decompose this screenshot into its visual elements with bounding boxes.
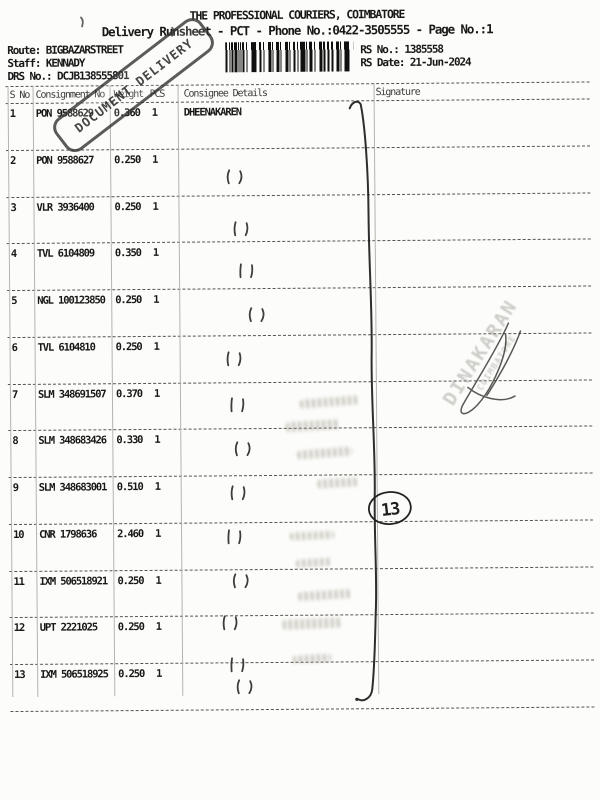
rs-no-label: RS No.: [360, 43, 399, 56]
cell-pcs: 1 [152, 154, 157, 166]
print-through-marks [0, 0, 597, 2]
staff-label: Staff: [7, 57, 40, 70]
cell-consignment_no: IXM 506518921 [39, 575, 107, 588]
rs-no-value: 1385558 [404, 43, 443, 56]
cell-consignment_no: SLM 348691507 [38, 388, 106, 401]
cell-weight: 0.250 [118, 621, 144, 633]
cell-consignment_no: CNR 1798636 [39, 528, 96, 540]
rs-barcode [225, 41, 353, 72]
cell-consignment_no: SLM 348683426 [38, 435, 106, 448]
cell-pcs: 1 [154, 341, 159, 353]
cell-pcs: 1 [156, 621, 161, 633]
cell-weight: 0.330 [116, 434, 142, 446]
cell-s_no: 10 [13, 529, 24, 541]
cell-consignment_no: IXM 506518925 [40, 668, 108, 681]
staff-line: Staff: KENNADY [7, 56, 84, 70]
cell-consignment_no: SLM 348683001 [39, 481, 107, 494]
cell-weight: 0.370 [116, 388, 142, 400]
cell-s_no: 1 [10, 108, 15, 120]
cell-consignee: DHEENAKAREN [184, 106, 241, 118]
drs-label: DRS No.: [7, 70, 51, 83]
route-label: Route: [7, 44, 40, 57]
cell-s_no: 5 [11, 295, 16, 307]
rs-date-line: RS Date: 21-Jun-2024 [360, 55, 470, 69]
cell-consignment_no: PON 9588627 [36, 154, 93, 166]
table-row: 13IXM 5065189250.2501 [10, 661, 594, 712]
cell-s_no: 9 [13, 482, 18, 494]
cell-consignment_no: UPT 2221025 [40, 622, 97, 634]
cell-s_no: 12 [14, 622, 25, 634]
cell-weight: 2.460 [117, 528, 143, 540]
cell-pcs: 1 [155, 481, 160, 493]
cell-weight: 0.250 [116, 341, 142, 353]
table-row: 2PON 95886270.2501 [6, 146, 590, 197]
table-row: 3VLR 39364000.2501 [6, 193, 590, 244]
rs-date-value: 21-Jun-2024 [410, 55, 471, 68]
rs-date-label: RS Date: [360, 56, 404, 69]
cell-weight: 0.250 [117, 575, 143, 587]
cell-pcs: 1 [155, 575, 160, 587]
cell-consignment_no: TVL 6104810 [38, 341, 95, 353]
cell-pcs: 1 [152, 200, 157, 212]
route-line: Route: BIGBAZARSTREET [7, 43, 123, 57]
table-row: 4TVL 61048090.3501 [7, 240, 591, 291]
table-row: 9SLM 3486830010.5101 [9, 474, 593, 525]
col-header-sno: S No [10, 90, 30, 101]
rs-no-line: RS No.: 1385558 [360, 43, 443, 57]
cell-pcs: 1 [154, 434, 159, 446]
cell-s_no: 2 [10, 155, 15, 167]
cell-pcs: 1 [156, 668, 161, 680]
cell-s_no: 8 [12, 435, 17, 447]
cell-pcs: 1 [154, 387, 159, 399]
cell-s_no: 11 [13, 576, 24, 588]
cell-pcs: 1 [153, 247, 158, 259]
cell-pcs: 1 [153, 294, 158, 306]
cell-consignment_no: NGL 100123850 [37, 294, 105, 307]
route-value: BIGBAZARSTREET [46, 43, 123, 57]
cell-pcs: 1 [152, 107, 157, 119]
cell-weight: 0.250 [114, 154, 140, 166]
cell-weight: 0.250 [118, 668, 144, 680]
cell-consignment_no: VLR 3936400 [36, 201, 93, 213]
col-header-consignee: Consignee Details [184, 88, 267, 100]
cell-pcs: 1 [155, 528, 160, 540]
cell-weight: 0.250 [114, 201, 140, 213]
cell-s_no: 4 [11, 248, 16, 260]
delivery-runsheet-page: THE PROFESSIONAL COURIERS, COIMBATORE De… [0, 0, 600, 800]
cell-s_no: 6 [12, 342, 17, 354]
cell-weight: 0.350 [115, 247, 141, 259]
cell-consignment_no: TVL 6104809 [37, 248, 94, 260]
cell-s_no: 7 [12, 389, 17, 401]
cell-s_no: 13 [14, 669, 25, 681]
staff-value: KENNADY [46, 56, 85, 69]
cell-weight: 0.250 [115, 294, 141, 306]
cell-weight: 0.510 [117, 481, 143, 493]
col-header-signature: Signature [376, 87, 420, 98]
cell-s_no: 3 [10, 202, 15, 214]
scanned-sheet: THE PROFESSIONAL COURIERS, COIMBATORE De… [0, 0, 600, 800]
